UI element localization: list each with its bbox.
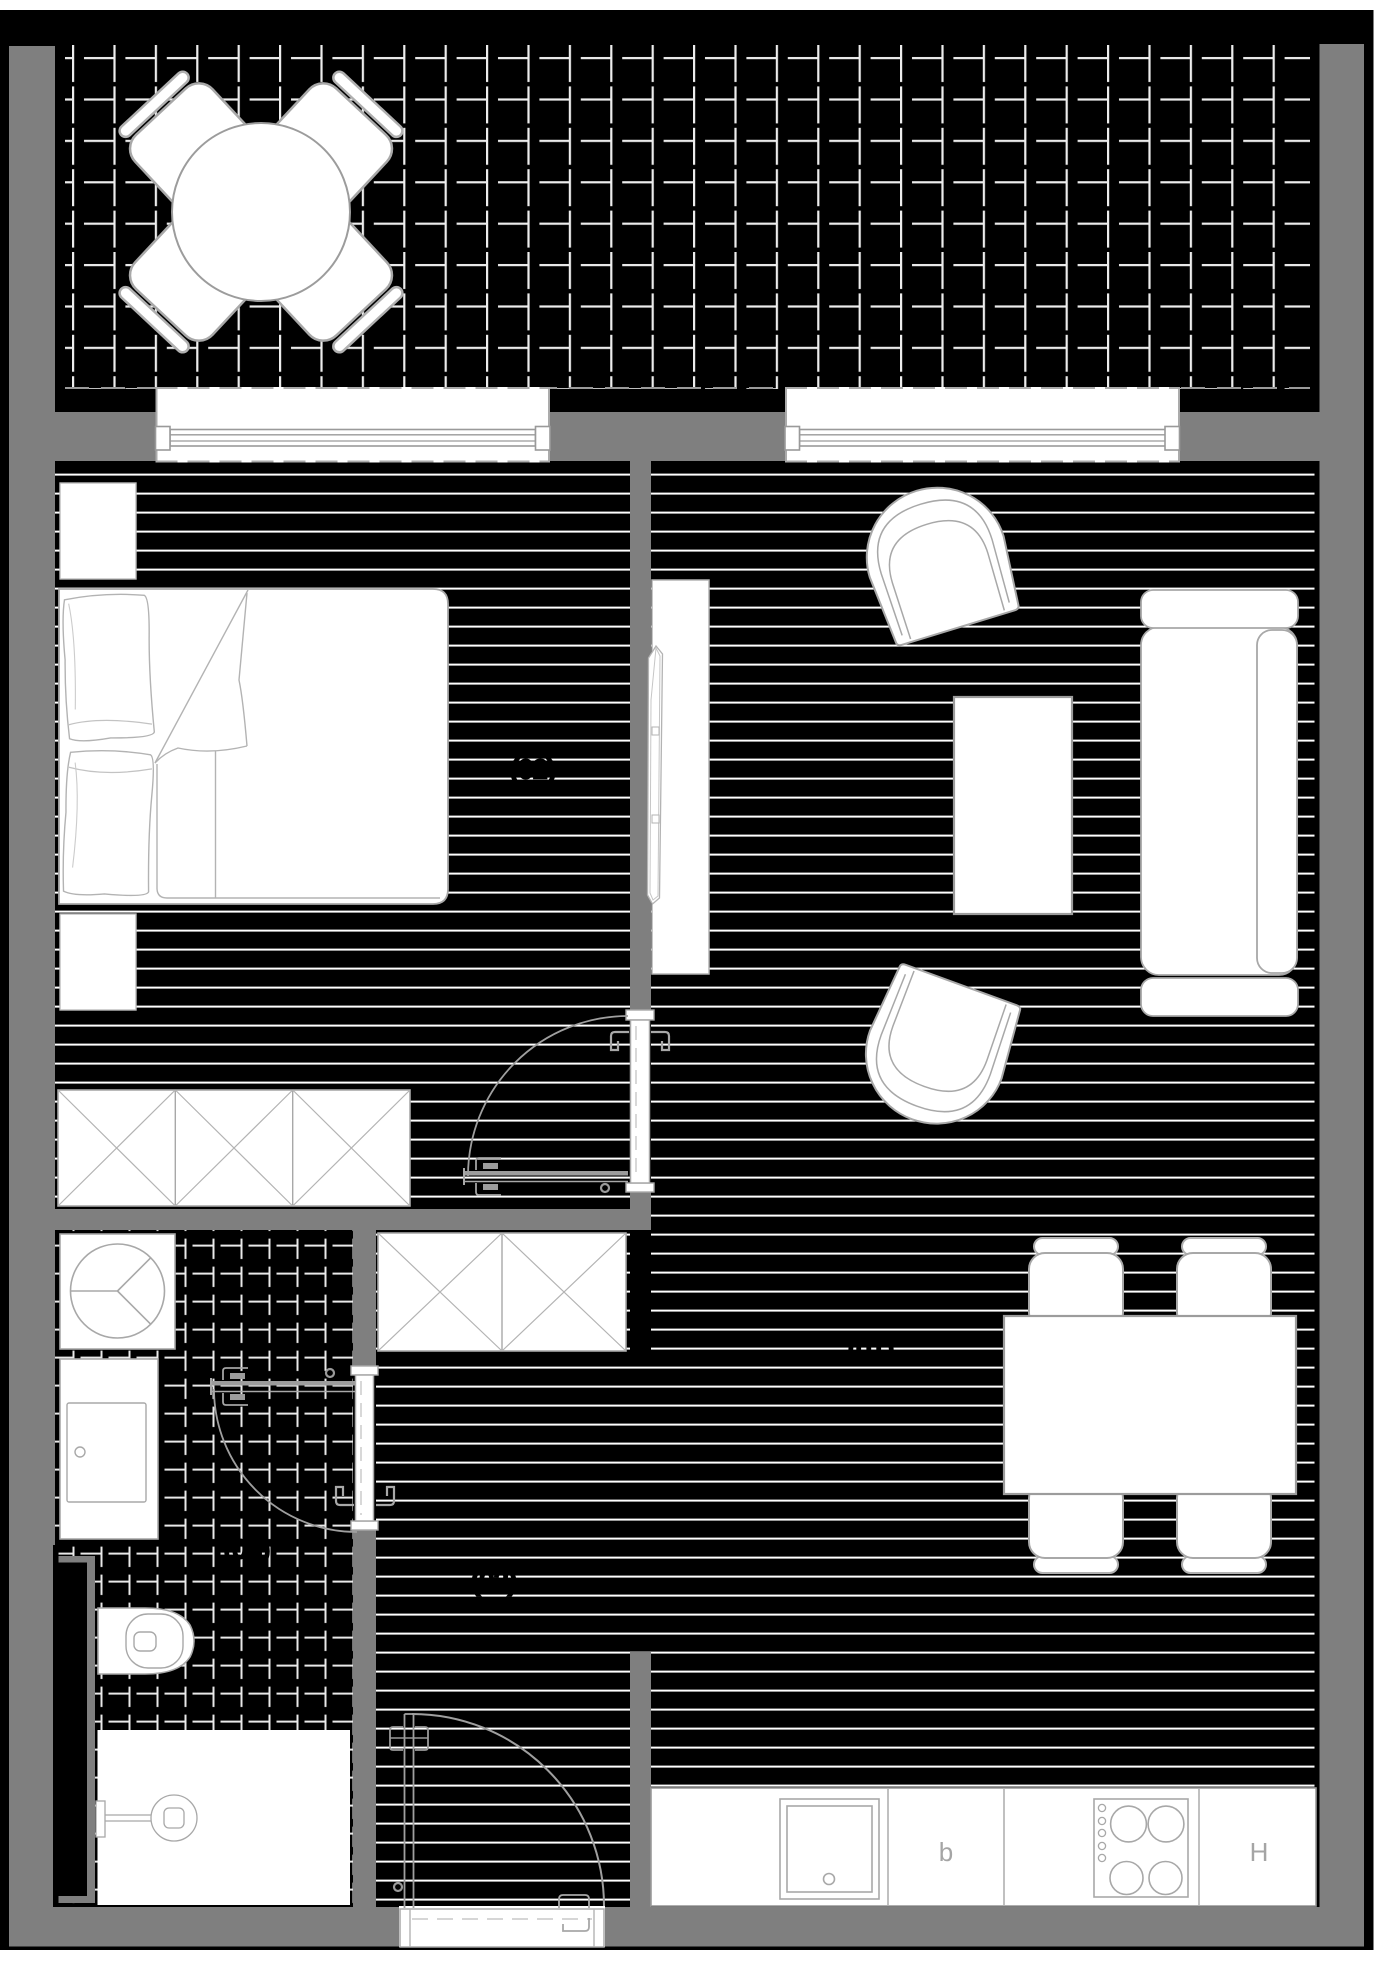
svg-text:(04): (04) — [224, 1534, 270, 1564]
svg-text:(02): (02) — [510, 754, 556, 784]
svg-text:(01): (01) — [848, 1334, 894, 1364]
svg-text:H: H — [1250, 1837, 1269, 1867]
svg-text:(03): (03) — [471, 1566, 517, 1596]
svg-text:b: b — [939, 1837, 953, 1867]
